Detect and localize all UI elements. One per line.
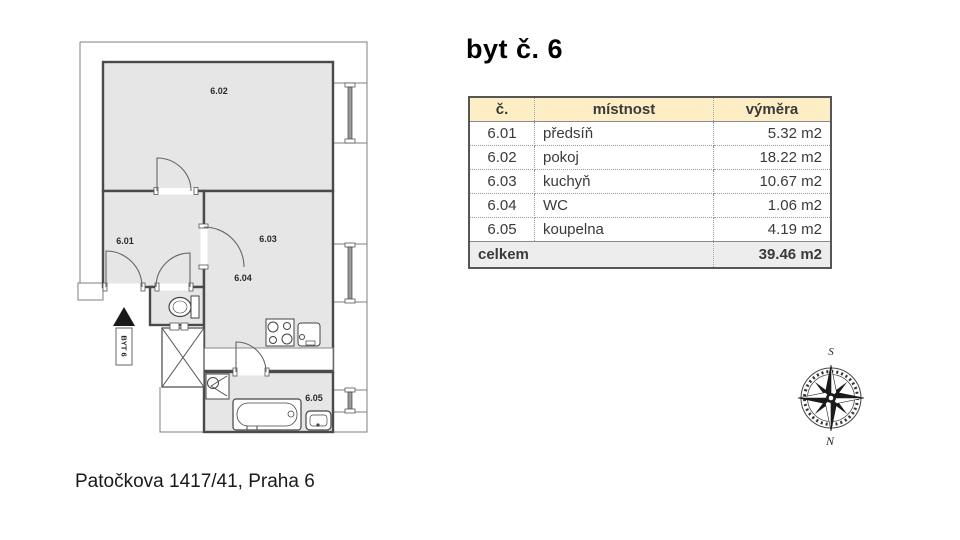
entrance-arrow: BYT 6 bbox=[113, 307, 135, 365]
window-icon-koupelna bbox=[345, 388, 355, 413]
table-row: 6.03 kuchyň 10.67 m2 bbox=[469, 170, 831, 194]
toilet-icon bbox=[169, 296, 199, 318]
header-no: č. bbox=[469, 97, 535, 122]
cell-area: 4.19 m2 bbox=[714, 218, 832, 242]
footer-area: 39.46 m2 bbox=[714, 242, 832, 269]
cell-area: 1.06 m2 bbox=[714, 194, 832, 218]
footer-label: celkem bbox=[469, 242, 714, 269]
cell-room: WC bbox=[535, 194, 714, 218]
shaft bbox=[162, 323, 204, 387]
shower-basin-icon bbox=[206, 374, 229, 399]
stove-icon bbox=[266, 319, 294, 346]
cell-area: 10.67 m2 bbox=[714, 170, 832, 194]
table-row: 6.02 pokoj 18.22 m2 bbox=[469, 146, 831, 170]
room-label-603: 6.03 bbox=[259, 234, 277, 244]
cell-no: 6.05 bbox=[469, 218, 535, 242]
window-icon-pokoj bbox=[345, 83, 355, 143]
cell-no: 6.02 bbox=[469, 146, 535, 170]
room-label-604: 6.04 bbox=[234, 273, 252, 283]
kitchen-counter bbox=[204, 348, 333, 371]
table-row: 6.05 koupelna 4.19 m2 bbox=[469, 218, 831, 242]
compass-north-label: N bbox=[825, 434, 835, 448]
cell-area: 5.32 m2 bbox=[714, 122, 832, 146]
area-table: č. místnost výměra 6.01 předsíň 5.32 m2 … bbox=[468, 96, 832, 269]
cell-no: 6.04 bbox=[469, 194, 535, 218]
kitchen-sink-icon bbox=[298, 323, 320, 346]
room-label-605: 6.05 bbox=[305, 393, 323, 403]
cell-no: 6.03 bbox=[469, 170, 535, 194]
entrance-arrow-label: BYT 6 bbox=[120, 335, 129, 356]
window-icon-kuchyn bbox=[345, 243, 355, 303]
table-header-row: č. místnost výměra bbox=[469, 97, 831, 122]
table-row: 6.04 WC 1.06 m2 bbox=[469, 194, 831, 218]
floor-plan: BYT 6 6.01 6.02 6.03 6.04 6.05 bbox=[70, 30, 380, 445]
compass-rose: S N bbox=[789, 342, 875, 448]
cell-room: koupelna bbox=[535, 218, 714, 242]
room-label-602: 6.02 bbox=[210, 86, 228, 96]
bathtub-icon bbox=[233, 399, 301, 430]
cell-no: 6.01 bbox=[469, 122, 535, 146]
cell-room: pokoj bbox=[535, 146, 714, 170]
room-label-601: 6.01 bbox=[116, 236, 134, 246]
compass-south-label: S bbox=[828, 346, 834, 358]
address-text: Patočkova 1417/41, Praha 6 bbox=[75, 471, 315, 493]
room-pokoj bbox=[103, 62, 333, 191]
table-footer-row: celkem 39.46 m2 bbox=[469, 242, 831, 269]
cell-room: předsíň bbox=[535, 122, 714, 146]
cell-area: 18.22 m2 bbox=[714, 146, 832, 170]
cell-room: kuchyň bbox=[535, 170, 714, 194]
window-icons bbox=[345, 83, 355, 413]
washbasin-icon bbox=[306, 411, 331, 430]
table-row: 6.01 předsíň 5.32 m2 bbox=[469, 122, 831, 146]
page-title: byt č. 6 bbox=[466, 34, 563, 65]
header-area: výměra bbox=[714, 97, 832, 122]
header-room: místnost bbox=[535, 97, 714, 122]
